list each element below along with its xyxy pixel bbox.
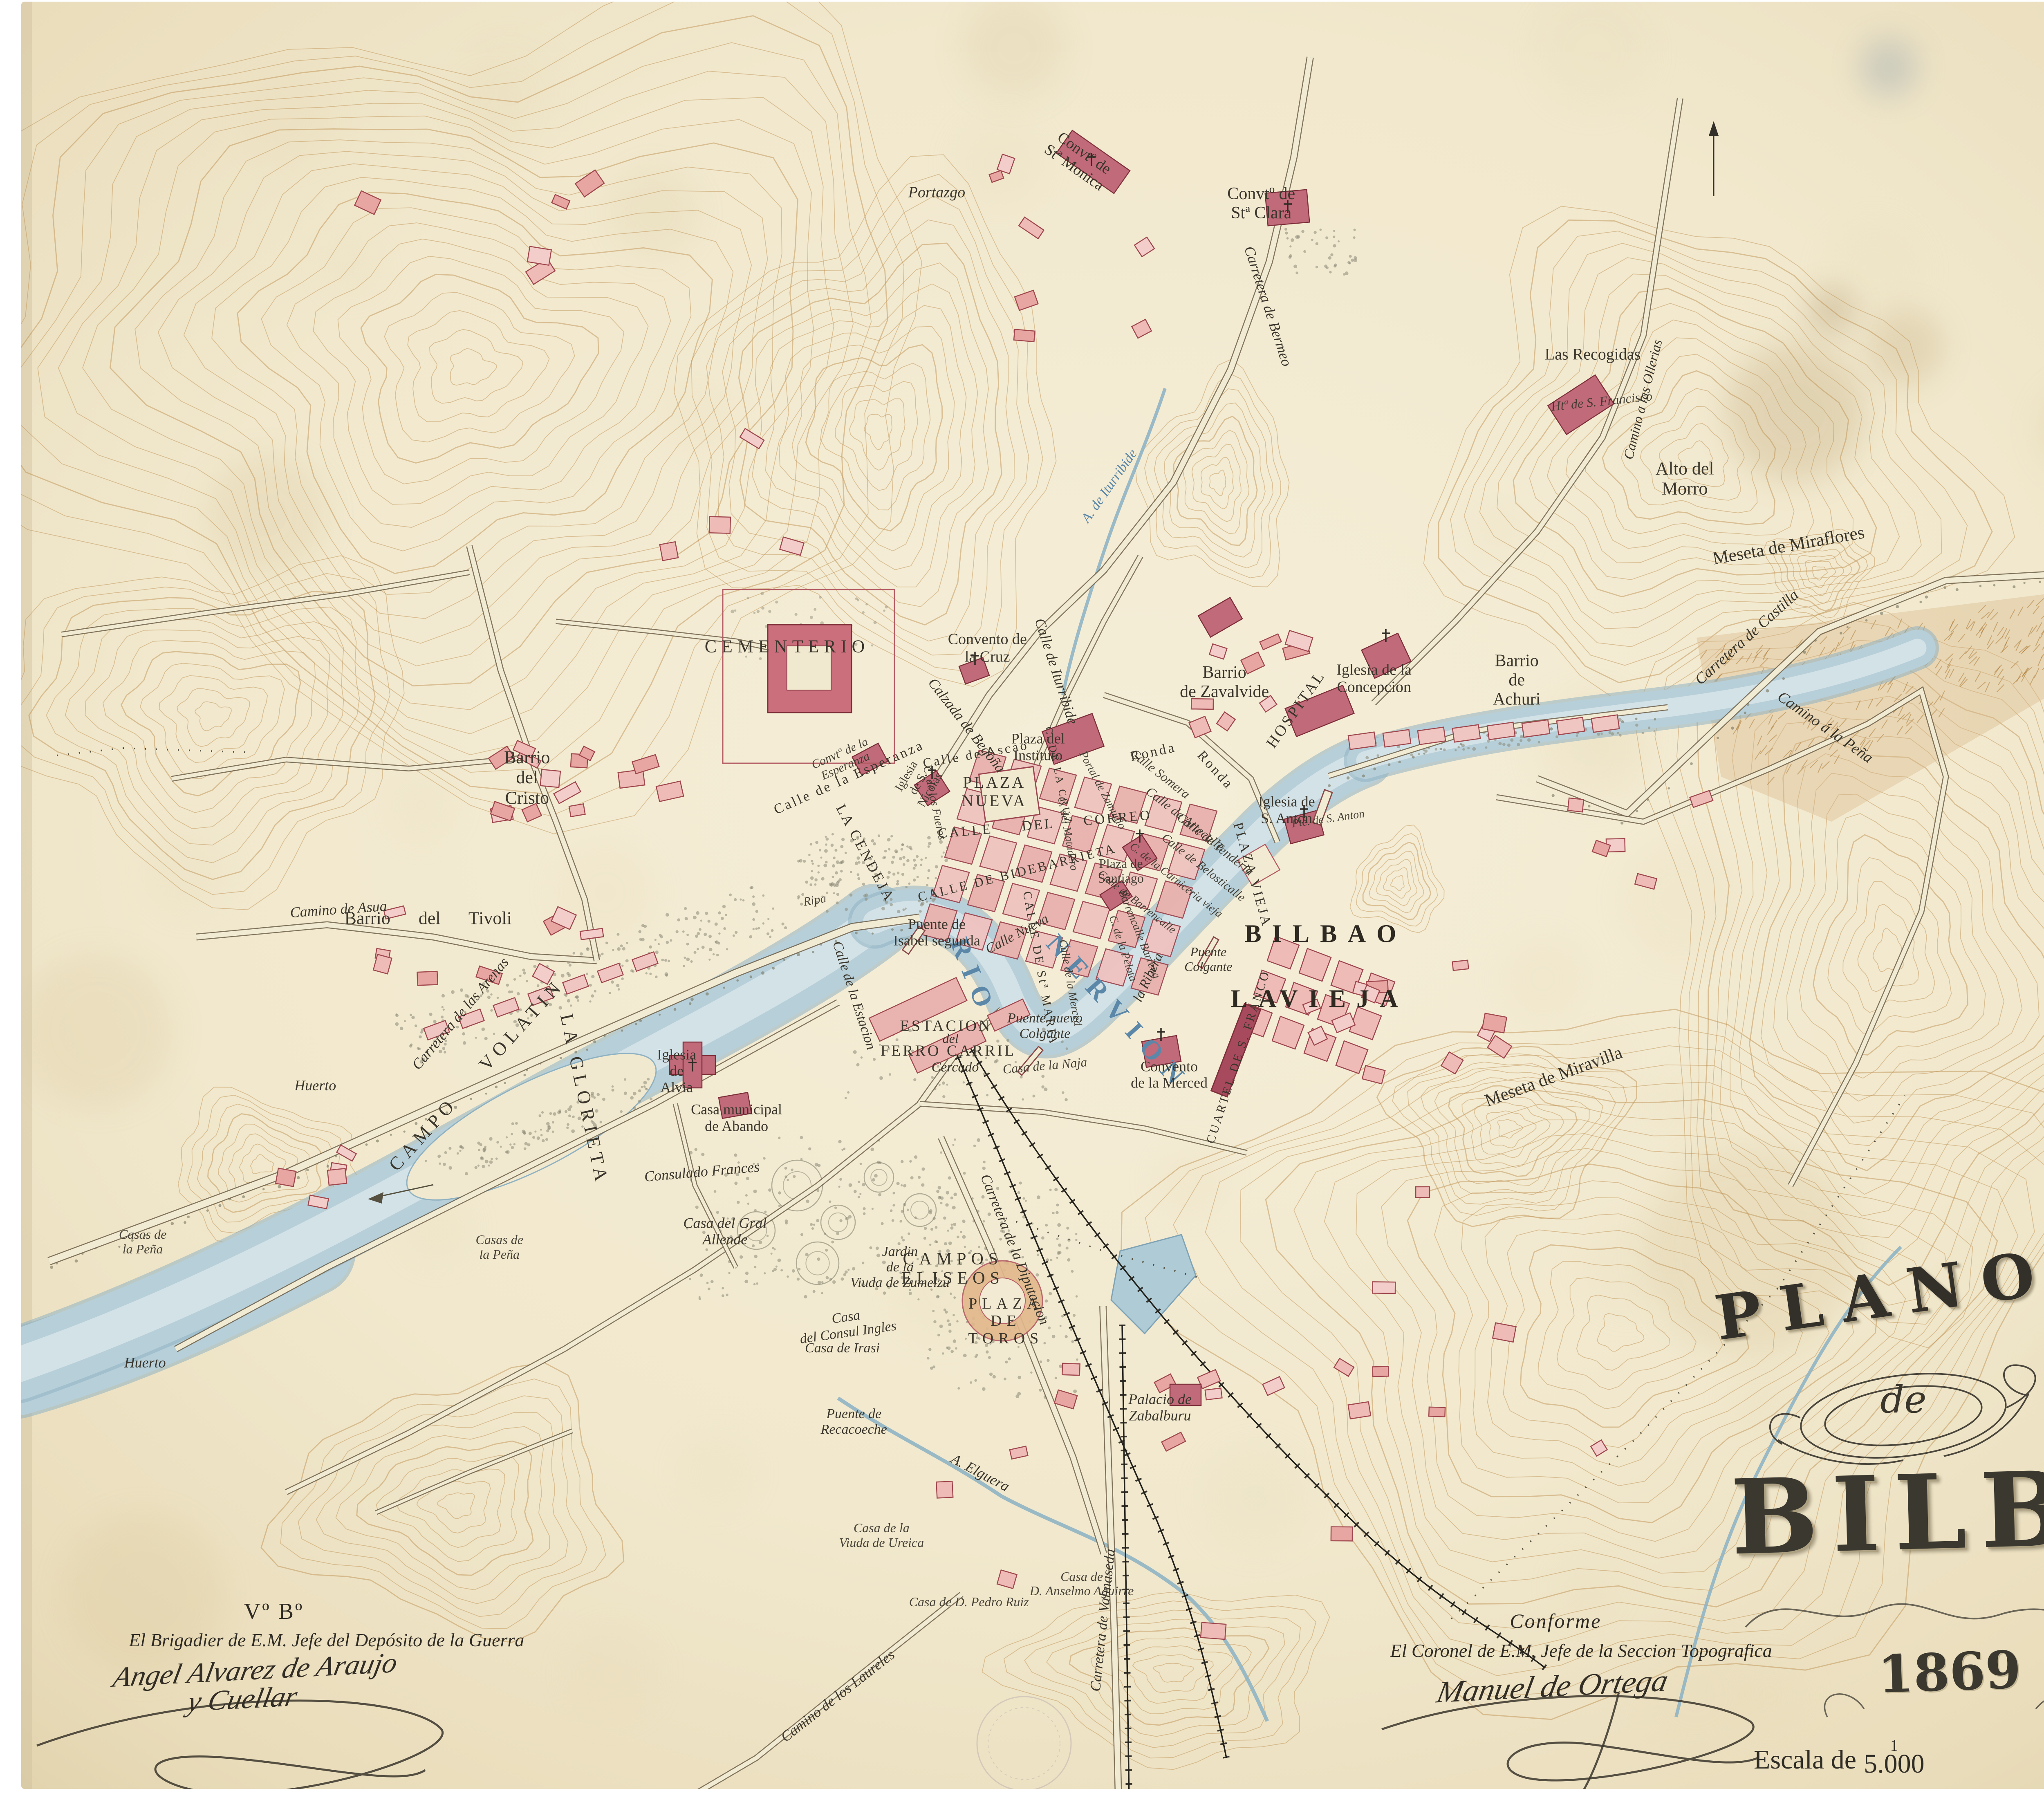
coronel-role-line: El Coronel de E.M. Jefe de la Seccion To… [1390,1640,1772,1661]
brigadier-signature-2: y Cuellar [185,1680,300,1719]
scale-denominator: 5.000 [1864,1753,1925,1775]
visto-bueno-heading: Vº Bº [244,1598,304,1625]
scale-label: Escala de [1754,1744,1856,1775]
title-de-ornament: de [1754,1343,2044,1460]
conforme-heading: Conforme [1510,1609,1601,1633]
map-sheet: CEMENTERIOConvento de la CruzCalzada de … [0,0,2044,1800]
scale-fraction: 1 5.000 [1864,1739,1925,1775]
map-title-year: 1869 [1822,1637,2044,1707]
map-title-bilbao: BILBAO [1729,1444,2044,1578]
scale-statement: Escala de 1 5.000 [1754,1739,1925,1775]
map-title-de: de [1880,1378,1926,1421]
brigadier-role-line: El Brigadier de E.M. Jefe del Depósito d… [129,1629,524,1651]
